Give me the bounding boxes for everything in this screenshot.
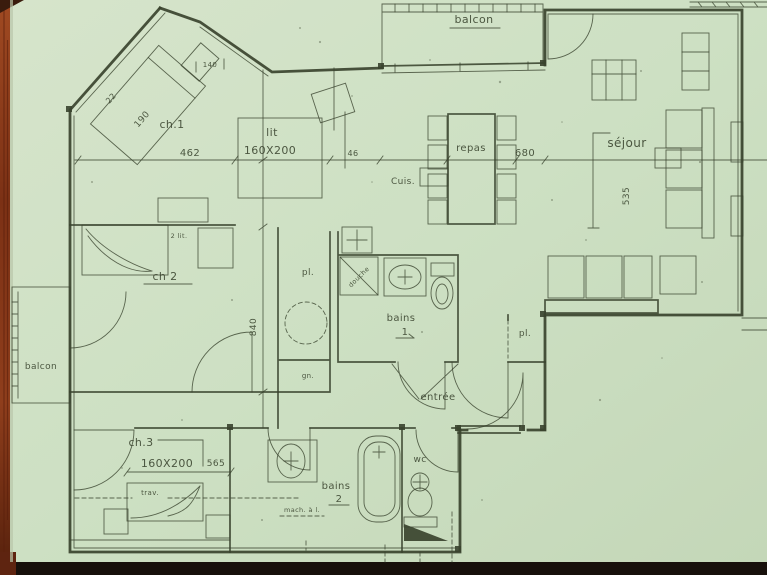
dim-535: 535: [622, 187, 632, 205]
dim-46: 46: [348, 149, 359, 158]
ch2-note: 2 lit.: [171, 232, 188, 240]
ch3-label: ch.3: [128, 436, 153, 449]
photographed-floor-plan: balcon balcon: [0, 0, 767, 575]
bains1-number: 1: [402, 327, 409, 338]
shadow-band-bottom: [0, 562, 767, 575]
balcony-left-label: balcon: [25, 362, 57, 372]
gn-label: gn.: [302, 372, 314, 380]
sejour-label: séjour: [607, 136, 646, 150]
wc-label: wc: [413, 455, 426, 465]
repas-label: repas: [456, 143, 486, 154]
pl-entree-label: pl.: [519, 329, 531, 339]
dim-680: 680: [515, 148, 535, 159]
dim-565: 565: [207, 459, 225, 469]
bains2-label: bains: [322, 481, 351, 492]
pl-corridor-label: pl.: [302, 268, 314, 278]
lit-size-label: 160X200: [244, 144, 296, 157]
paper-sheet: [10, 0, 767, 565]
ch1-label: ch.1: [159, 118, 184, 131]
ch3-dim: 160X200: [141, 457, 193, 470]
trav-label: trav.: [141, 489, 159, 497]
paper-edge-highlight: [10, 0, 13, 562]
lit-label: lit: [266, 126, 278, 139]
wood-corner: [0, 552, 16, 575]
bains2-number: 2: [336, 494, 343, 505]
bains1-label: bains: [387, 313, 416, 324]
washing-machine-label: mach. à l.: [284, 506, 320, 514]
entree-label: entrée: [420, 391, 455, 403]
dim-840: 840: [249, 318, 259, 336]
wood-table-left-edge: [0, 0, 10, 575]
floor-plan-drawing: balcon balcon: [0, 0, 767, 575]
balcony-top-label: balcon: [455, 13, 494, 26]
ch2-label: ch 2: [152, 270, 177, 283]
cuisine-label: Cuis.: [391, 177, 415, 187]
dim-140: 140: [203, 61, 218, 69]
dim-462: 462: [180, 148, 200, 159]
